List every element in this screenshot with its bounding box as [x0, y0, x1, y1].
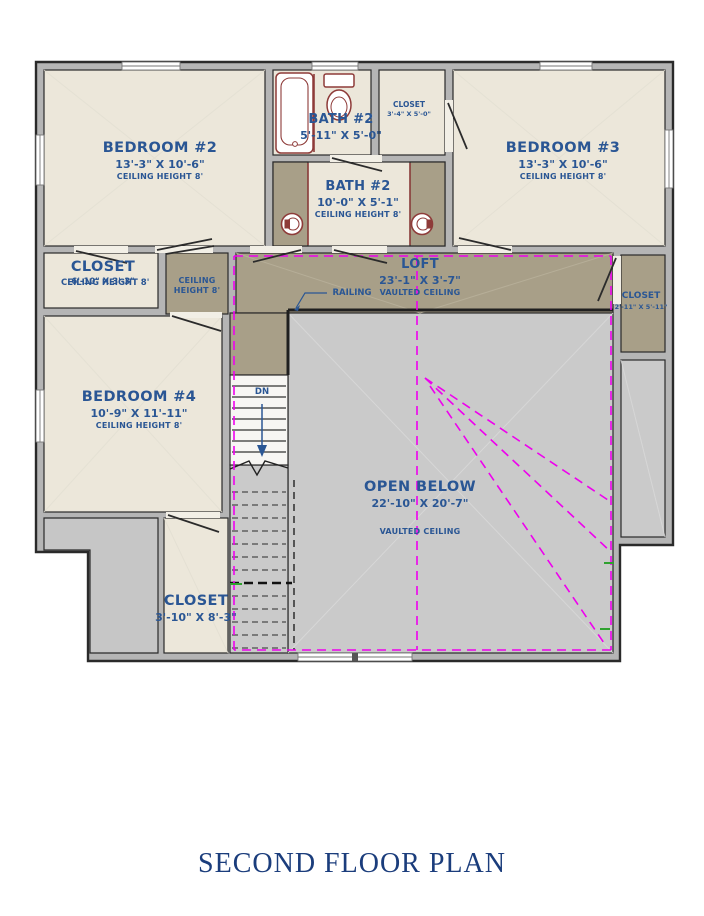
toilet-tank — [324, 74, 354, 87]
bedroom3-label: BEDROOM #3 13'-3" X 10'-6" CEILING HEIGH… — [506, 139, 621, 183]
open-below-vaulted-label: VAULTED CEILING — [380, 527, 461, 537]
closet-bottom-label: CLOSET 3'-10" X 8'-3" — [155, 592, 237, 625]
open-below-label: OPEN BELOW 22'-10" X 20'-7" — [364, 478, 476, 511]
bedroom2-label: BEDROOM #2 13'-3" X 10'-6" CEILING HEIGH… — [103, 139, 218, 183]
loft-left-ext — [230, 313, 288, 375]
closet-right-label: CLOSET 2'-11" X 5'-11" — [615, 291, 668, 311]
closet-left-overlapped-text: 6'-10" X 3'-3" CEILING HEIGHT 8' — [48, 277, 158, 288]
bath-upper-label: BATH #2 5'-11" X 5'-0" — [300, 112, 382, 143]
bottom-left-area — [44, 518, 158, 653]
floor-plan-drawing — [0, 0, 704, 704]
closet-left-label: CLOSET 6'-10" X 3'-3" CEILING HEIGHT 8' — [48, 258, 158, 288]
floor-plan-page: BEDROOM #2 13'-3" X 10'-6" CEILING HEIGH… — [0, 0, 704, 916]
railing-label: RAILING — [333, 288, 372, 299]
closet-upper-label: CLOSET 3'-4" X 5'-0" — [387, 100, 431, 118]
hallway-label: CEILING HEIGHT 8' — [174, 276, 220, 297]
plan-title: SECOND FLOOR PLAN — [198, 848, 506, 880]
bedroom4-label: BEDROOM #4 10'-9" X 11'-11" CEILING HEIG… — [82, 388, 197, 432]
loft-label: LOFT 23'-1" X 3'-7" VAULTED CEILING — [379, 257, 461, 299]
dn-label: DN — [255, 387, 269, 398]
stair-lower-floor — [230, 465, 288, 653]
bath-main-label: BATH #2 10'-0" X 5'-1" CEILING HEIGHT 8' — [315, 179, 402, 221]
